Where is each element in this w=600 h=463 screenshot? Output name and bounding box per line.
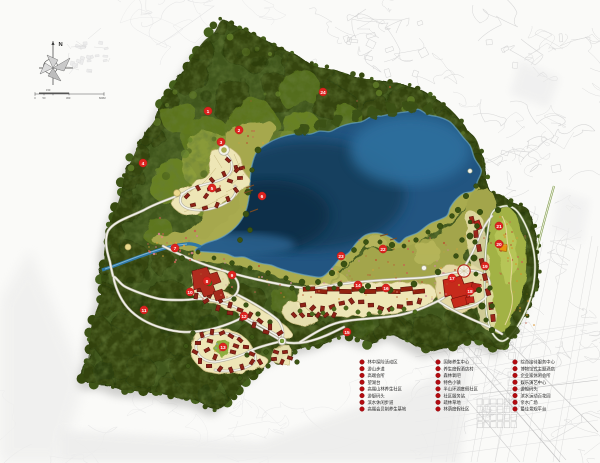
svg-text:高端会员制养生基地: 高端会员制养生基地: [368, 406, 407, 413]
svg-text:N: N: [59, 42, 63, 48]
svg-text:6: 6: [261, 194, 264, 200]
svg-text:18: 18: [467, 289, 473, 295]
svg-text:游艇码头: 游艇码头: [368, 392, 386, 399]
svg-text:企业家休闲会所: 企业家休闲会所: [521, 372, 552, 379]
svg-text:22: 22: [380, 247, 386, 253]
svg-text:10: 10: [187, 290, 193, 296]
svg-text:游山步道: 游山步道: [368, 365, 386, 372]
svg-text:17: 17: [449, 276, 455, 282]
svg-text:林荫度假社区: 林荫度假社区: [444, 406, 470, 413]
svg-text:博物馆式主题酒店: 博物馆式主题酒店: [521, 365, 556, 372]
svg-text:4: 4: [142, 161, 145, 167]
svg-text:国际养生中心: 国际养生中心: [444, 359, 470, 366]
svg-text:望湖台: 望湖台: [368, 379, 381, 386]
svg-text:8: 8: [206, 279, 209, 285]
svg-text:7: 7: [174, 246, 177, 252]
svg-text:24: 24: [320, 90, 326, 96]
svg-text:23: 23: [338, 254, 344, 260]
svg-text:12: 12: [241, 314, 247, 320]
svg-text:21: 21: [496, 224, 502, 230]
svg-text:养生度假酒店村: 养生度假酒店村: [444, 365, 475, 372]
svg-text:300: 300: [66, 96, 71, 100]
svg-text:娱乐演艺中心: 娱乐演艺中心: [521, 379, 547, 386]
svg-text:15: 15: [344, 330, 350, 336]
svg-text:半山环湖度假社区: 半山环湖度假社区: [444, 386, 479, 393]
svg-text:14: 14: [355, 283, 361, 289]
svg-text:最佳景观平台: 最佳景观平台: [521, 406, 547, 413]
svg-text:高端会所: 高端会所: [368, 372, 386, 379]
svg-text:11: 11: [141, 308, 146, 314]
svg-text:社区服务站: 社区服务站: [444, 392, 466, 399]
svg-text:16: 16: [383, 286, 389, 292]
svg-text:3: 3: [220, 140, 223, 146]
svg-text:150: 150: [46, 88, 51, 92]
svg-text:滨水休闲步道: 滨水休闲步道: [368, 399, 394, 406]
svg-text:游船码头: 游船码头: [521, 386, 539, 393]
svg-text:13: 13: [220, 345, 226, 351]
svg-text:19: 19: [482, 264, 488, 270]
svg-text:森林氧吧: 森林氧吧: [444, 372, 462, 379]
svg-text:高端山林养生社区: 高端山林养生社区: [368, 386, 403, 393]
svg-text:2: 2: [238, 128, 241, 134]
svg-text:林中探险活动区: 林中探险活动区: [368, 359, 399, 366]
svg-text:1: 1: [207, 109, 210, 115]
svg-text:600M: 600M: [99, 96, 106, 100]
svg-text:综合接待服务中心: 综合接待服务中心: [521, 359, 556, 366]
svg-text:9: 9: [231, 273, 234, 279]
svg-text:5: 5: [211, 186, 214, 192]
svg-text:特色小镇: 特色小镇: [444, 379, 462, 386]
svg-text:亲水广场: 亲水广场: [521, 399, 539, 406]
svg-text:20: 20: [496, 242, 502, 248]
svg-text:滨水运动百花园: 滨水运动百花园: [521, 392, 551, 399]
svg-text:疏林草地: 疏林草地: [444, 399, 462, 406]
